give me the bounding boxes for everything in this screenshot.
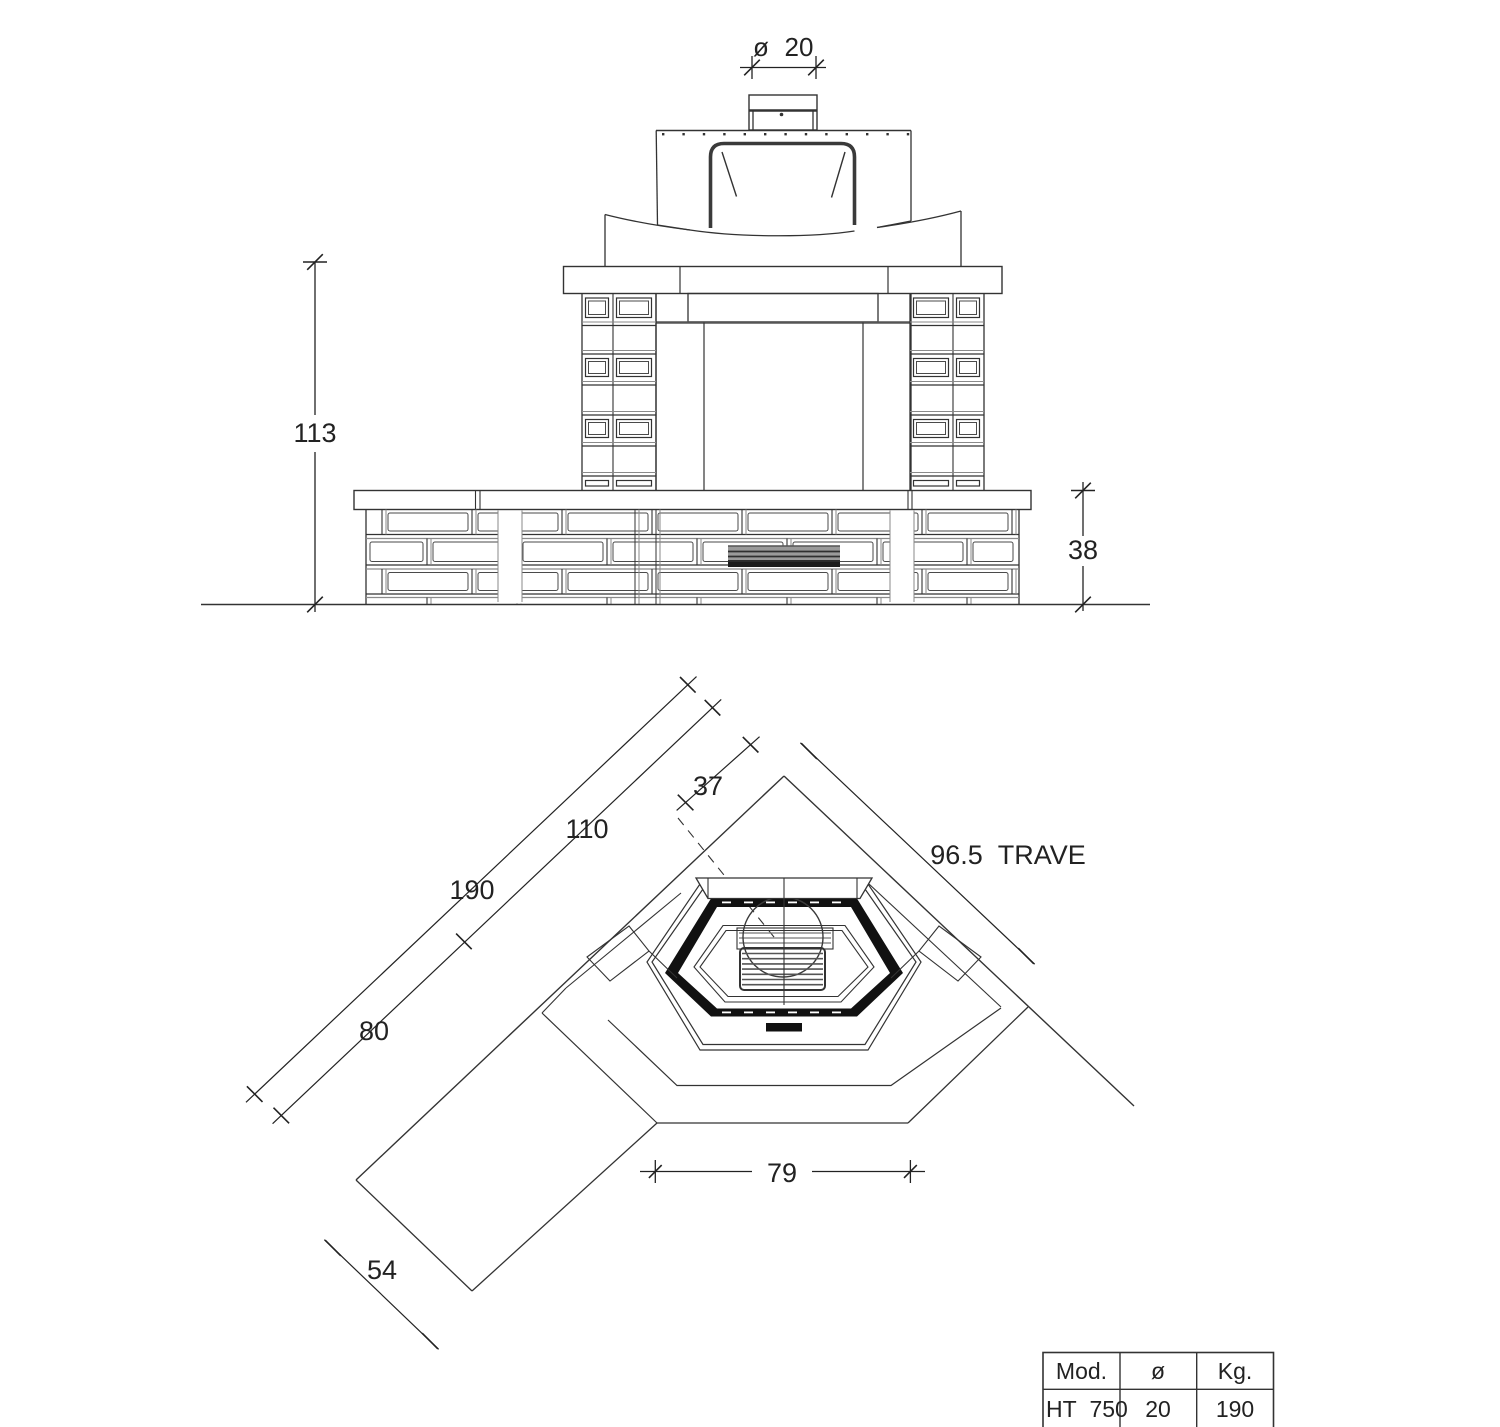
svg-text:ø: ø bbox=[753, 32, 769, 62]
svg-text:20: 20 bbox=[785, 32, 814, 62]
svg-text:54: 54 bbox=[367, 1255, 397, 1285]
svg-text:HT 750: HT 750 bbox=[1046, 1396, 1128, 1422]
svg-text:37: 37 bbox=[693, 771, 723, 801]
svg-text:20: 20 bbox=[1145, 1396, 1171, 1422]
svg-text:110: 110 bbox=[565, 814, 608, 844]
svg-text:80: 80 bbox=[359, 1016, 389, 1046]
svg-text:Mod.: Mod. bbox=[1056, 1358, 1107, 1384]
svg-text:ø: ø bbox=[1151, 1358, 1165, 1384]
svg-text:38: 38 bbox=[1068, 535, 1098, 565]
svg-text:79: 79 bbox=[767, 1158, 797, 1188]
svg-text:190: 190 bbox=[1216, 1396, 1254, 1422]
svg-text:96.5 TRAVE: 96.5 TRAVE bbox=[930, 840, 1086, 870]
svg-text:113: 113 bbox=[293, 418, 336, 448]
svg-text:190: 190 bbox=[449, 875, 494, 905]
svg-text:Kg.: Kg. bbox=[1218, 1358, 1253, 1384]
